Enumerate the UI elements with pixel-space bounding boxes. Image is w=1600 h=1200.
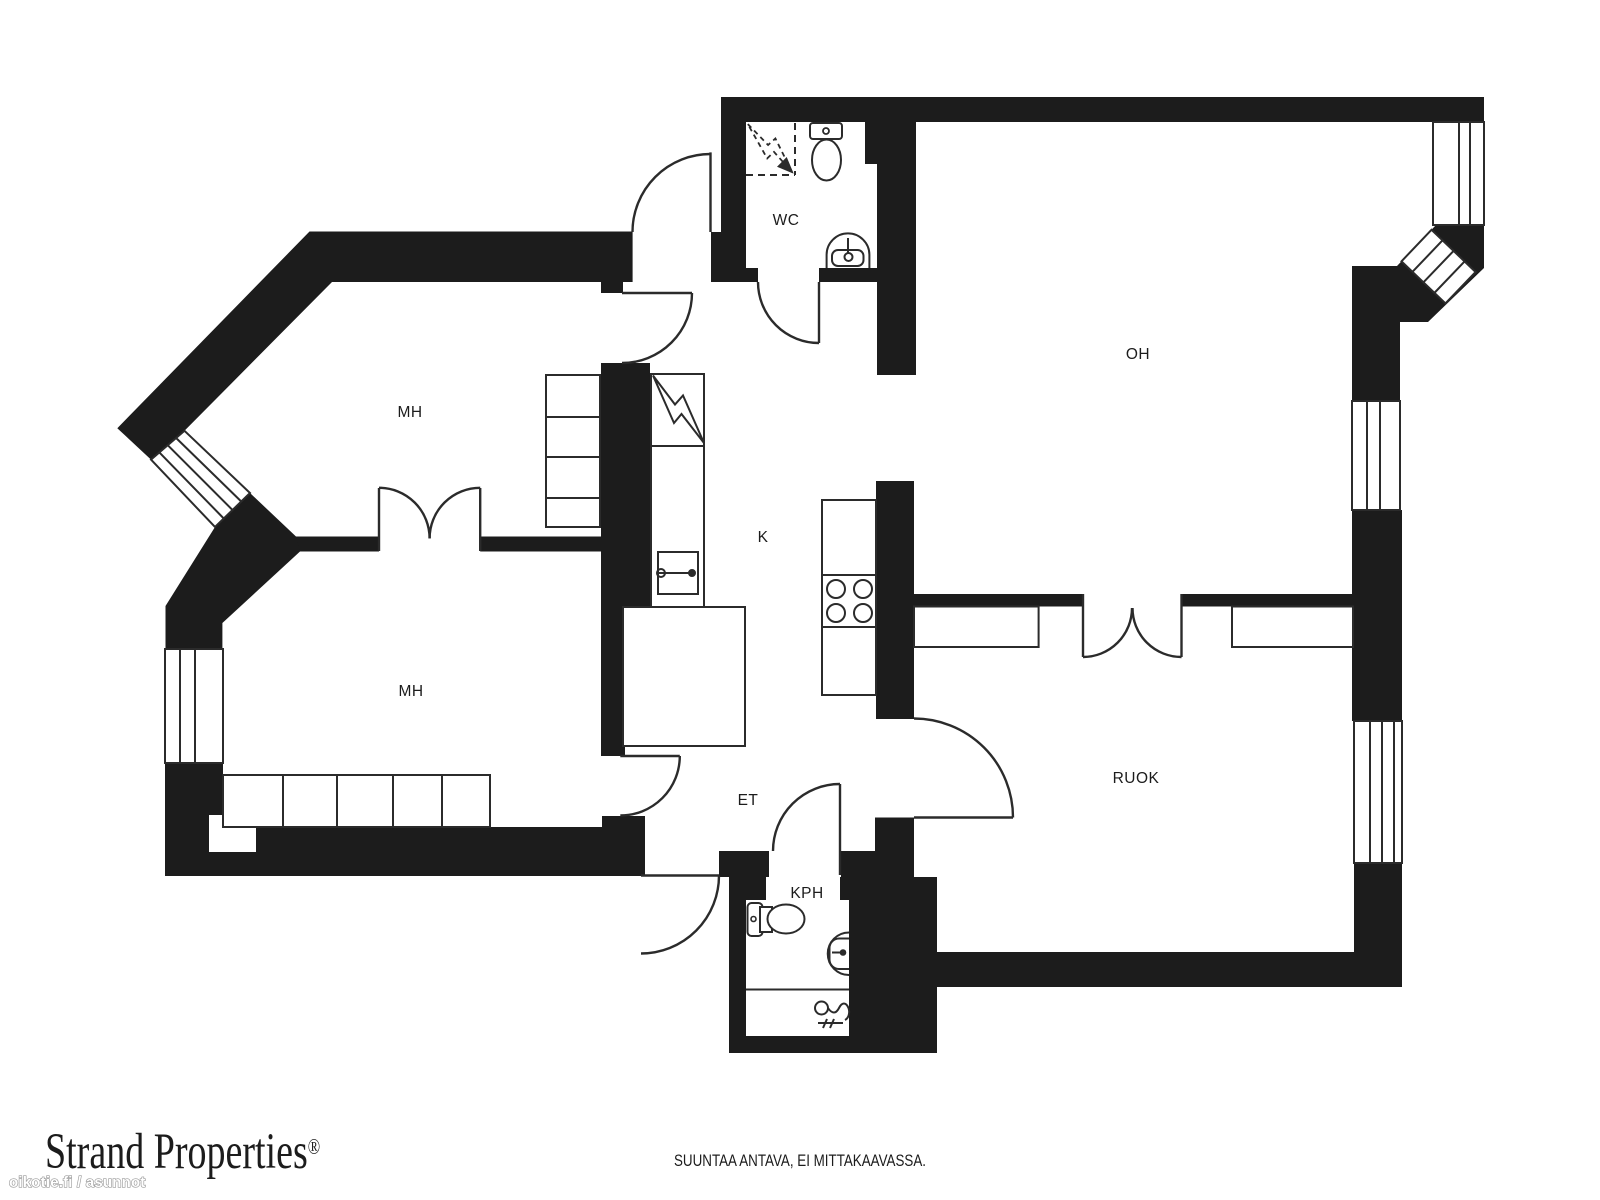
svg-text:ET: ET — [738, 792, 759, 809]
svg-text:KPH: KPH — [790, 885, 823, 902]
svg-text:OH: OH — [1126, 346, 1150, 363]
svg-text:MH: MH — [397, 404, 422, 421]
svg-text:WC: WC — [773, 212, 800, 229]
svg-text:RUOK: RUOK — [1113, 770, 1160, 787]
svg-text:MH: MH — [398, 683, 423, 700]
svg-text:SUUNTAA ANTAVA, EI MITTAKAAVAS: SUUNTAA ANTAVA, EI MITTAKAAVASSA. — [674, 1152, 926, 1170]
svg-text:K: K — [758, 529, 769, 546]
